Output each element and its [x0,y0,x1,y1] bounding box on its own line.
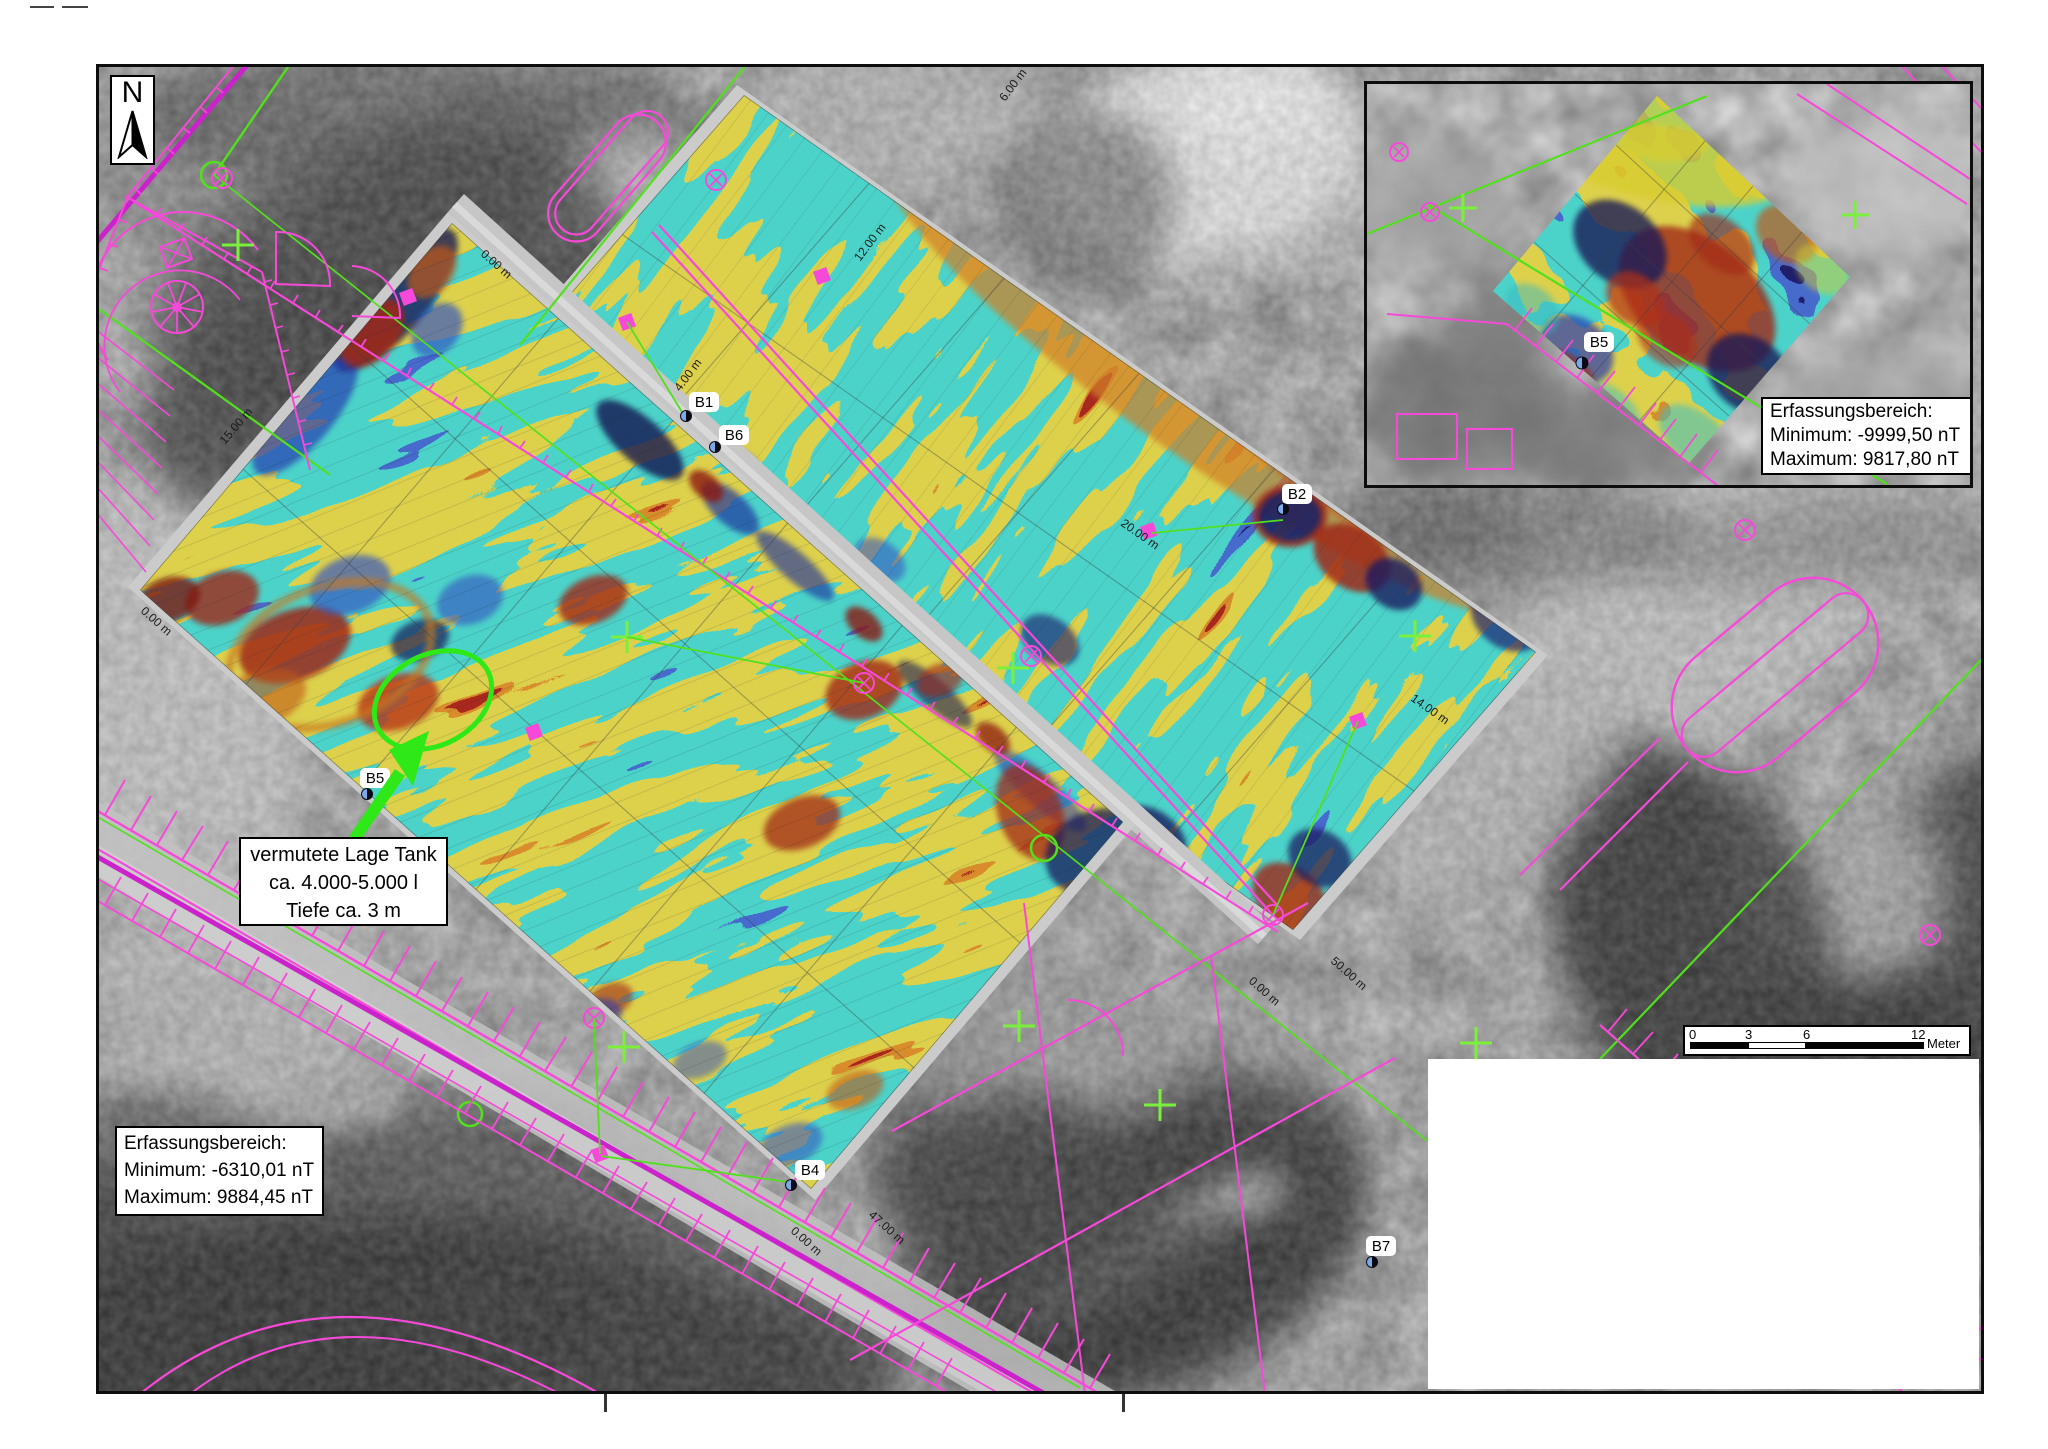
svg-text:B5: B5 [1590,334,1608,351]
